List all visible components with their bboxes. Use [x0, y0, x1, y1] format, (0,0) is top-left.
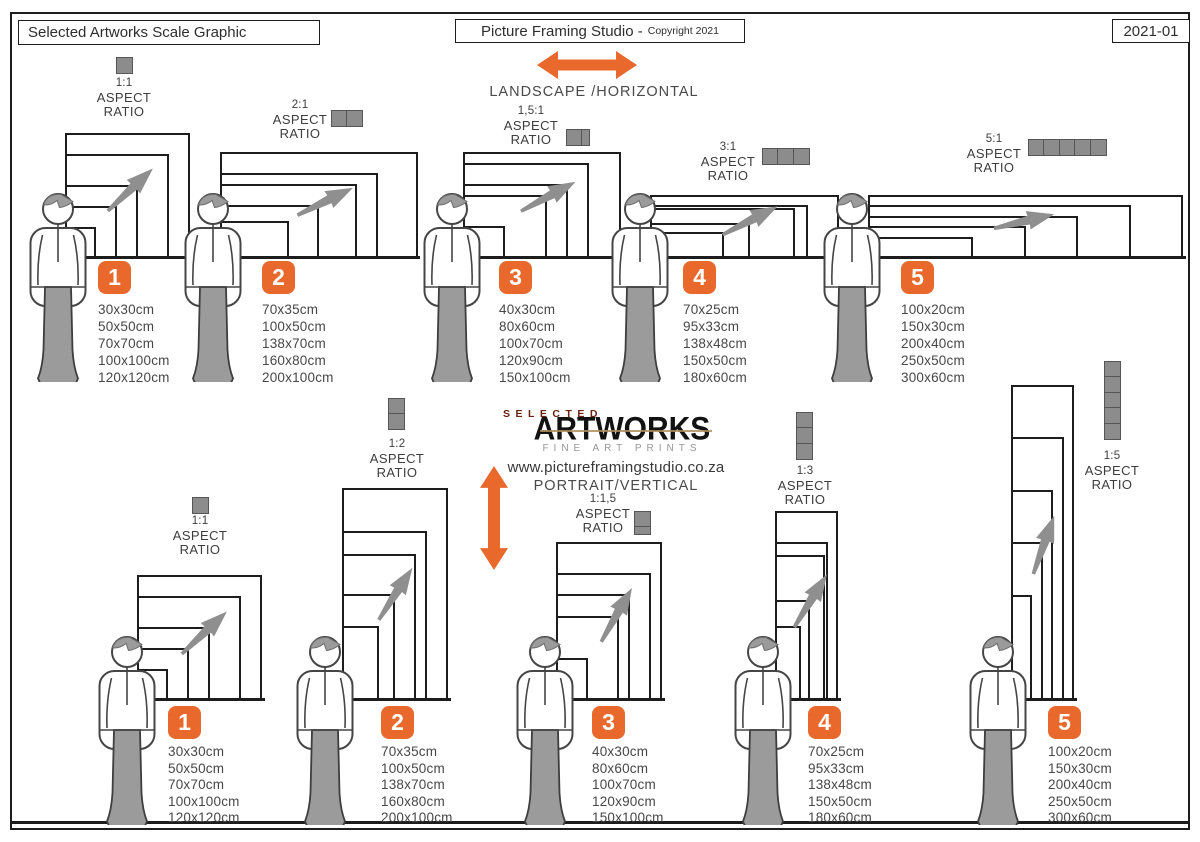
group-number-badge: 1 — [168, 706, 201, 739]
size-item: 200x40cm — [901, 335, 965, 352]
logo-tagline: FINE ART PRINTS — [472, 443, 772, 454]
size-item: 150x30cm — [1048, 761, 1112, 778]
size-item: 160x80cm — [381, 794, 453, 811]
vertical-double-arrow-icon — [478, 466, 510, 570]
size-list: 40x30cm 80x60cm 100x70cm 120x90cm 150x10… — [499, 301, 571, 386]
size-item: 138x48cm — [683, 335, 747, 352]
landscape-direction-label: LANDSCAPE /HORIZONTAL — [454, 84, 734, 100]
ratio-word: RATIO — [759, 493, 851, 508]
size-item: 250x50cm — [1048, 794, 1112, 811]
edition-code: 2021-01 — [1123, 23, 1178, 40]
aspect-ratio-label: 5:1 ASPECT RATIO — [948, 132, 1040, 176]
person-figure — [960, 635, 1036, 825]
person-figure — [89, 635, 165, 825]
size-item: 100x50cm — [262, 318, 334, 335]
person-figure — [287, 635, 363, 825]
size-item: 250x50cm — [901, 352, 965, 369]
ratio-word: RATIO — [351, 466, 443, 481]
size-item: 120x90cm — [499, 352, 571, 369]
header-title-box: Selected Artworks Scale Graphic — [18, 20, 320, 45]
size-item: 120x120cm — [98, 369, 170, 386]
group-number-badge: 4 — [683, 261, 716, 294]
ratio-square — [796, 443, 813, 460]
group-number-badge: 3 — [592, 706, 625, 739]
size-list: 70x25cm 95x33cm 138x48cm 150x50cm 180x60… — [683, 301, 747, 386]
person-figure — [175, 192, 251, 382]
studio-title-box: Picture Framing Studio - Copyright 2021 — [455, 19, 745, 43]
size-item: 70x25cm — [808, 744, 872, 761]
size-item: 100x70cm — [499, 335, 571, 352]
size-item: 70x70cm — [98, 335, 170, 352]
size-item: 300x60cm — [1048, 810, 1112, 827]
size-item: 40x30cm — [592, 744, 664, 761]
size-item: 150x30cm — [901, 318, 965, 335]
size-item: 150x50cm — [683, 352, 747, 369]
size-list: 70x35cm 100x50cm 138x70cm 160x80cm 200x1… — [262, 301, 334, 386]
size-item: 100x100cm — [98, 352, 170, 369]
page: Selected Artworks Scale Graphic Picture … — [0, 0, 1200, 842]
aspect-word: ASPECT — [254, 113, 346, 128]
size-item: 100x70cm — [592, 777, 664, 794]
aspect-word: ASPECT — [485, 119, 577, 134]
ratio-square — [346, 110, 363, 127]
size-item: 180x60cm — [683, 369, 747, 386]
group-number-badge: 5 — [901, 261, 934, 294]
ratio-square — [192, 497, 209, 514]
ratio-word: RATIO — [78, 105, 170, 120]
person-figure — [602, 192, 678, 382]
ratio-word: RATIO — [948, 161, 1040, 176]
size-item: 100x100cm — [168, 794, 240, 811]
size-item: 50x50cm — [168, 761, 240, 778]
aspect-word: ASPECT — [948, 147, 1040, 162]
size-item: 300x60cm — [901, 369, 965, 386]
size-item: 70x35cm — [381, 744, 453, 761]
group-number-badge: 1 — [98, 261, 131, 294]
aspect-ratio-label: 1:1 ASPECT RATIO — [154, 514, 246, 558]
logo-distress-line — [540, 430, 712, 432]
aspect-ratio-label: 1,5:1 ASPECT RATIO — [485, 104, 577, 148]
group-number-badge: 4 — [808, 706, 841, 739]
size-item: 150x100cm — [592, 810, 664, 827]
aspect-ratio-label: 1:1,5 ASPECT RATIO — [557, 492, 649, 536]
ratio-value: 1:3 — [759, 464, 851, 479]
ratio-word: RATIO — [1066, 478, 1158, 493]
size-item: 100x20cm — [901, 301, 965, 318]
person-figure — [20, 192, 96, 382]
ratio-value: 1:2 — [351, 437, 443, 452]
ratio-square — [793, 148, 810, 165]
aspect-ratio-label: 3:1 ASPECT RATIO — [682, 140, 774, 184]
size-list: 100x20cm 150x30cm 200x40cm 250x50cm 300x… — [901, 301, 965, 386]
ratio-value: 1:1 — [154, 514, 246, 529]
ratio-icon-1-1 — [192, 497, 209, 514]
aspect-word: ASPECT — [682, 155, 774, 170]
aspect-word: ASPECT — [557, 507, 649, 522]
group-number-badge: 2 — [381, 706, 414, 739]
size-item: 120x90cm — [592, 794, 664, 811]
ratio-square — [116, 57, 133, 74]
size-item: 200x40cm — [1048, 777, 1112, 794]
size-item: 138x48cm — [808, 777, 872, 794]
group-number-badge: 2 — [262, 261, 295, 294]
size-item: 160x80cm — [262, 352, 334, 369]
aspect-ratio-label: 1:1 ASPECT RATIO — [78, 76, 170, 120]
person-figure — [507, 635, 583, 825]
size-item: 30x30cm — [98, 301, 170, 318]
ratio-value: 5:1 — [948, 132, 1040, 147]
size-item: 100x20cm — [1048, 744, 1112, 761]
size-item: 95x33cm — [808, 761, 872, 778]
page-title: Selected Artworks Scale Graphic — [28, 24, 246, 41]
group-number-badge: 5 — [1048, 706, 1081, 739]
group-number-badge: 3 — [499, 261, 532, 294]
size-item: 95x33cm — [683, 318, 747, 335]
size-item: 40x30cm — [499, 301, 571, 318]
ratio-icon-1-5 — [1104, 361, 1121, 440]
person-figure — [814, 192, 890, 382]
edition-box: 2021-01 — [1112, 19, 1190, 43]
ratio-half-square — [581, 129, 590, 146]
size-item: 120x120cm — [168, 810, 240, 827]
ratio-value: 2:1 — [254, 98, 346, 113]
ratio-word: RATIO — [485, 133, 577, 148]
ratio-word: RATIO — [254, 127, 346, 142]
size-list: 70x35cm 100x50cm 138x70cm 160x80cm 200x1… — [381, 744, 453, 827]
size-list: 100x20cm 150x30cm 200x40cm 250x50cm 300x… — [1048, 744, 1112, 827]
ratio-word: RATIO — [557, 521, 649, 536]
size-item: 138x70cm — [262, 335, 334, 352]
size-item: 70x25cm — [683, 301, 747, 318]
size-list: 40x30cm 80x60cm 100x70cm 120x90cm 150x10… — [592, 744, 664, 827]
size-item: 200x100cm — [381, 810, 453, 827]
ratio-square — [1104, 423, 1121, 440]
aspect-ratio-label: 1:5 ASPECT RATIO — [1066, 449, 1158, 493]
website-url: www.pictureframingstudio.co.za — [466, 459, 766, 476]
size-list: 70x25cm 95x33cm 138x48cm 150x50cm 180x60… — [808, 744, 872, 827]
ratio-value: 1:1 — [78, 76, 170, 91]
ratio-icon-1-2 — [388, 398, 405, 430]
studio-title: Picture Framing Studio - — [481, 23, 643, 40]
aspect-ratio-label: 2:1 ASPECT RATIO — [254, 98, 346, 142]
ratio-square — [388, 413, 405, 430]
size-item: 100x50cm — [381, 761, 453, 778]
ratio-square — [1090, 139, 1107, 156]
size-list: 30x30cm 50x50cm 70x70cm 100x100cm 120x12… — [168, 744, 240, 827]
ratio-word: RATIO — [154, 543, 246, 558]
ratio-icon-1-1 — [116, 57, 133, 74]
size-item: 80x60cm — [592, 761, 664, 778]
horizontal-double-arrow-icon — [537, 49, 637, 81]
aspect-word: ASPECT — [759, 479, 851, 494]
size-item: 70x35cm — [262, 301, 334, 318]
aspect-ratio-label: 1:3 ASPECT RATIO — [759, 464, 851, 508]
copyright-text: Copyright 2021 — [648, 25, 719, 37]
size-item: 200x100cm — [262, 369, 334, 386]
size-item: 150x50cm — [808, 794, 872, 811]
size-list: 30x30cm 50x50cm 70x70cm 100x100cm 120x12… — [98, 301, 170, 386]
aspect-word: ASPECT — [351, 452, 443, 467]
aspect-word: ASPECT — [1066, 464, 1158, 479]
ratio-value: 3:1 — [682, 140, 774, 155]
ratio-value: 1:1,5 — [557, 492, 649, 507]
aspect-word: ASPECT — [154, 529, 246, 544]
size-item: 150x100cm — [499, 369, 571, 386]
aspect-word: ASPECT — [78, 91, 170, 106]
ratio-word: RATIO — [682, 169, 774, 184]
size-item: 180x60cm — [808, 810, 872, 827]
size-item: 50x50cm — [98, 318, 170, 335]
ratio-value: 1,5:1 — [485, 104, 577, 119]
size-item: 70x70cm — [168, 777, 240, 794]
person-figure — [725, 635, 801, 825]
person-figure — [414, 192, 490, 382]
ratio-value: 1:5 — [1066, 449, 1158, 464]
size-item: 30x30cm — [168, 744, 240, 761]
aspect-ratio-label: 1:2 ASPECT RATIO — [351, 437, 443, 481]
size-item: 138x70cm — [381, 777, 453, 794]
ratio-icon-1-3 — [796, 412, 813, 460]
size-item: 80x60cm — [499, 318, 571, 335]
